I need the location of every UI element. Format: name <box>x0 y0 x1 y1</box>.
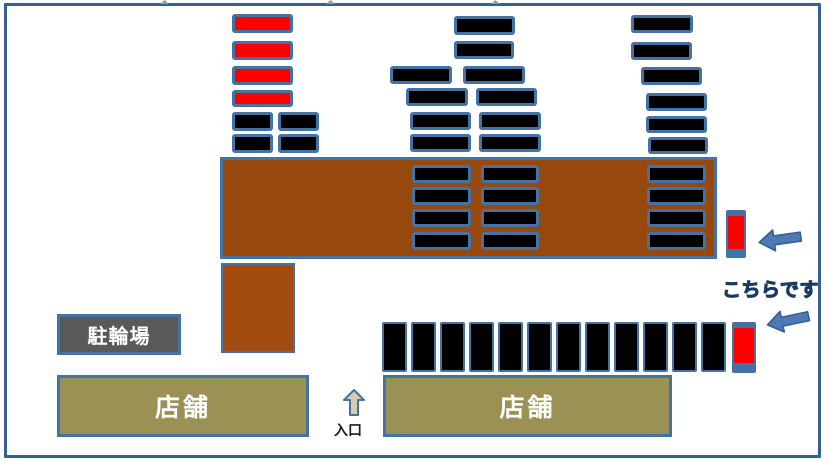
entrance-up-arrow-icon <box>343 389 365 416</box>
entrance-label: 入口 <box>330 420 366 440</box>
left-arrow-lower-icon <box>763 302 812 340</box>
parking-lot-map: 駐輪場 店舗 店舗 こちらです 入口 <box>0 0 828 467</box>
annotation-layer: こちらです 入口 <box>0 0 828 467</box>
here-callout-label: こちらです <box>722 275 826 302</box>
left-arrow-upper-icon <box>756 223 803 256</box>
